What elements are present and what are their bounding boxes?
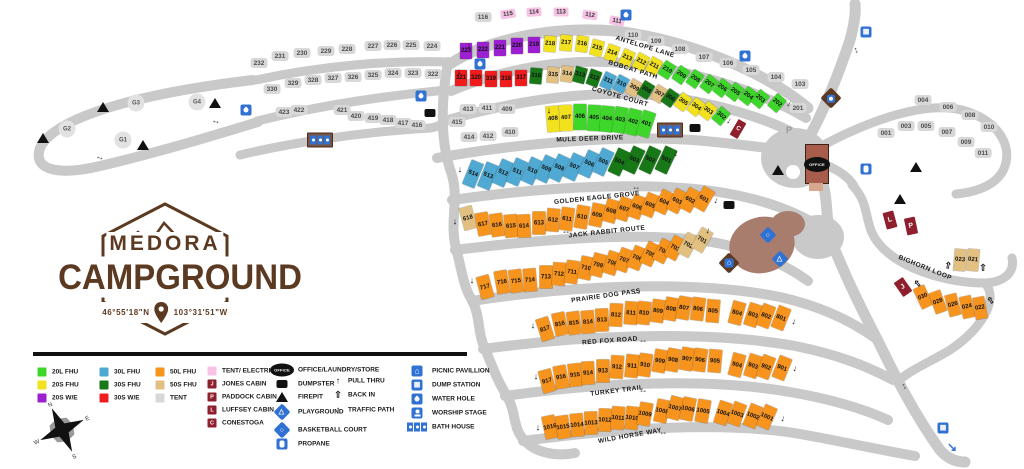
water-hole-icon — [475, 59, 486, 70]
legend-label-office-laundry-store: OFFICE/LAUNDRY/STORE — [298, 367, 379, 374]
picnic-pavillion-icon: ⌂ — [722, 256, 737, 271]
dump-station-icon: ▦ — [412, 380, 423, 391]
firepit-icon — [276, 392, 288, 402]
icon-part — [724, 201, 735, 209]
dump-station-icon: ▦ — [861, 27, 872, 38]
legend-swatch-luffsey-cabin: L — [208, 406, 217, 415]
site-003: 003 — [898, 121, 915, 131]
site-327: 327 — [325, 73, 342, 83]
icon-part — [416, 426, 419, 429]
back-in-arrow: ⇧ — [334, 391, 342, 400]
compass-n: N — [47, 402, 53, 409]
icon-part — [241, 105, 252, 116]
playground-icon: △ — [276, 406, 288, 418]
exit-arrow: ↘ — [947, 441, 957, 453]
site-1014: 1014 — [570, 413, 585, 437]
traffic-arrow: ↔ — [632, 183, 641, 192]
legend-label-propane: PROPANE — [298, 441, 330, 448]
icon-part — [910, 162, 922, 172]
icon-part — [669, 129, 672, 132]
icon-part: ↑ — [534, 373, 539, 382]
icon-part — [414, 423, 420, 432]
site-106: 106 — [720, 58, 737, 68]
icon-part — [476, 60, 483, 67]
site-116: 116 — [475, 12, 492, 22]
icon-part — [425, 109, 436, 117]
site-713: 713 — [540, 266, 553, 289]
icon-part: ▦ — [863, 29, 870, 36]
icon-part: ↑ — [531, 322, 536, 331]
site-220: 220 — [511, 38, 523, 54]
icon-part: ↔ — [639, 336, 648, 345]
icon-part — [310, 136, 316, 145]
playground-icon: △ — [774, 253, 786, 265]
icon-part — [827, 94, 835, 102]
dump-station-icon: ▦ — [938, 423, 949, 434]
icon-part: ↘ — [947, 441, 957, 453]
site-412: 412 — [480, 131, 497, 141]
site-318: 318 — [500, 71, 512, 87]
legend-swatch-50l-fhu — [156, 368, 165, 377]
propane-icon — [861, 164, 872, 175]
icon-part — [407, 423, 427, 432]
icon-part — [407, 423, 413, 432]
site-009: 009 — [958, 137, 975, 147]
site-319: 319 — [485, 71, 497, 87]
legend-swatch-conestoga: C — [208, 419, 217, 428]
icon-part: OFFICE — [270, 364, 294, 377]
worship-stage-icon — [412, 408, 423, 419]
icon-part — [414, 415, 420, 417]
site-320: 320 — [470, 70, 482, 86]
site-005: 005 — [918, 121, 935, 131]
site-114: 114 — [526, 7, 542, 17]
site-411: 411 — [479, 103, 496, 113]
site-407: 407 — [559, 105, 573, 132]
traffic-arrow: ↔ — [659, 428, 668, 437]
worship-stage-icon — [824, 91, 839, 106]
traffic-arrow: ↔ — [633, 288, 642, 297]
legend-divider — [33, 352, 467, 356]
pull-thru-arrow: ↑ — [457, 68, 462, 77]
icon-part: △ — [274, 404, 291, 421]
dumpster-icon — [425, 109, 436, 117]
icon-part — [137, 140, 149, 150]
back-in-arrow: ⇧ — [944, 261, 953, 271]
icon-part — [621, 10, 632, 21]
icon-part: ▦ — [940, 425, 947, 432]
legend-label-bath-house: BATH HOUSE — [432, 424, 475, 431]
legend-label-conestoga: CONESTOGA — [222, 420, 264, 427]
icon-part: ▦ — [414, 382, 421, 389]
firepit-icon — [37, 133, 49, 143]
site-410: 410 — [502, 127, 519, 137]
icon-part: ↑ — [470, 277, 475, 286]
firepit-icon — [137, 140, 149, 150]
legend-label-back-in: BACK IN — [348, 392, 375, 399]
traffic-arrow: ↔ — [556, 135, 565, 144]
site-914: 914 — [581, 361, 595, 385]
pull-thru-arrow: ↑ — [336, 377, 341, 386]
legend-swatch-30s-w-e — [100, 394, 109, 403]
pull-thru-arrow: ↑ — [536, 424, 541, 433]
pull-thru-arrow: ↑ — [453, 218, 458, 227]
water-hole-icon — [621, 10, 632, 21]
icon-part: ⌂ — [718, 252, 739, 273]
icon-part — [37, 133, 49, 143]
icon-part — [861, 164, 872, 175]
legend-label-traffic-path: TRAFFIC PATH — [348, 407, 394, 414]
legend-swatch-20s-w-e — [38, 394, 47, 403]
site-422: 422 — [291, 105, 308, 115]
legend-label-basketball-court: BASKETBALL COURT — [298, 427, 367, 434]
site-217: 217 — [559, 35, 572, 52]
icon-part — [660, 126, 666, 135]
icon-part — [413, 395, 420, 402]
icon-part: ▦ — [861, 27, 872, 38]
dumpster-icon — [277, 380, 288, 388]
legend-label-worship-stage: WORSHIP STAGE — [432, 410, 487, 417]
site-912: 912 — [610, 355, 625, 379]
site-328: 328 — [305, 75, 322, 85]
icon-part — [277, 380, 288, 388]
icon-part — [622, 11, 629, 18]
site-112: 112 — [582, 9, 598, 20]
icon-part — [276, 392, 288, 402]
site-227: 227 — [365, 41, 382, 51]
icon-part — [97, 102, 109, 112]
legend-swatch-30l-fhu — [100, 368, 109, 377]
icon-part — [412, 394, 423, 405]
group-site-G2: G2 — [59, 121, 76, 138]
basketball-court-icon: ○ — [276, 424, 288, 436]
site-231: 231 — [272, 51, 289, 61]
legend-label-water-hole: WATER HOLE — [432, 396, 475, 403]
site-226: 226 — [384, 40, 401, 50]
traffic-arrow: ↔ — [211, 116, 221, 126]
icon-part — [416, 91, 427, 102]
site-315: 315 — [546, 67, 559, 84]
dumpster-icon — [690, 124, 701, 132]
icon-part: ↑ — [336, 406, 340, 414]
icon-part: ↑ — [457, 68, 462, 77]
icon-part: ⌂ — [412, 366, 423, 377]
site-323: 323 — [405, 68, 422, 78]
logo-coordinates: 46°55'18"N 103°31'51"W — [100, 302, 230, 323]
logo-longitude: 103°31'51"W — [174, 308, 228, 317]
site-325: 325 — [365, 70, 382, 80]
compass-w: W — [33, 439, 41, 447]
back-in-arrow: ⇧ — [979, 264, 987, 273]
office-sign: OFFICE — [804, 157, 830, 172]
icon-part: ⌂ — [415, 367, 420, 375]
location-pin-icon — [155, 302, 169, 323]
group-site-G1: G1 — [115, 132, 132, 149]
traffic-path-arrow: ↑ — [336, 406, 340, 414]
site-219: 219 — [528, 37, 540, 53]
legend-label-jones-cabin: JONES CABIN — [222, 381, 266, 388]
legend-label-30l-fhu: 30L FHU — [114, 369, 140, 376]
icon-part: ↔ — [633, 288, 642, 297]
site-1011: 1011 — [611, 406, 626, 430]
legend-swatch-paddock-cabin: P — [208, 393, 217, 402]
legend-label-50l-fhu: 50L FHU — [170, 369, 196, 376]
site-813: 813 — [595, 308, 609, 331]
bath-house-icon — [407, 423, 427, 432]
site-225: 225 — [403, 40, 420, 50]
traffic-arrow: ↔ — [562, 227, 571, 236]
pull-thru-arrow: ↑ — [458, 166, 463, 175]
legend-label-picnic-pavillion: PICNIC PAVILLION — [432, 368, 490, 375]
icon-part: OFFICE — [274, 368, 290, 373]
bath-house-icon — [307, 133, 333, 148]
group-site-G3: G3 — [128, 95, 145, 112]
icon-part — [772, 165, 784, 175]
pull-thru-arrow: ↑ — [534, 373, 539, 382]
legend-label-dump-station: DUMP STATION — [432, 382, 480, 389]
pull-thru-arrow: ↑ — [531, 322, 536, 331]
legend-swatch-tent — [156, 394, 165, 403]
icon-part: △ — [777, 255, 782, 262]
compass-e: E — [85, 416, 91, 423]
legend-label-20s-w-e: 20S W/E — [52, 395, 78, 402]
icon-part — [676, 129, 679, 132]
site-008: 008 — [962, 110, 979, 120]
icon-part — [475, 59, 486, 70]
bath-house-icon — [657, 123, 683, 138]
icon-part: △ — [772, 251, 789, 268]
legend-label-30s-w-e: 30S W/E — [114, 395, 140, 402]
icon-part — [829, 96, 833, 100]
site-614: 614 — [517, 214, 531, 238]
site-230: 230 — [294, 48, 311, 58]
site-222: 222 — [477, 42, 489, 58]
site-810: 810 — [636, 301, 651, 325]
site-224: 224 — [424, 41, 441, 51]
icon-part: ↔ — [562, 227, 571, 236]
site-324: 324 — [385, 68, 402, 78]
site-814: 814 — [581, 310, 596, 334]
icon-part: △ — [279, 408, 284, 415]
firepit-icon — [772, 165, 784, 175]
parking-label: P — [786, 125, 792, 135]
campground-logo: MEDORA CAMPGROUND 46°55'18"N 103°31'51"W — [60, 198, 340, 338]
site-103: 103 — [792, 79, 809, 89]
icon-part — [326, 139, 329, 142]
compass-s: S — [72, 454, 78, 461]
site-010: 010 — [981, 122, 998, 132]
icon-part — [412, 408, 423, 419]
icon-part — [820, 87, 841, 108]
icon-part — [277, 439, 288, 450]
pull-thru-arrow: ↑ — [470, 277, 475, 286]
site-011: 011 — [975, 148, 992, 158]
site-228: 228 — [339, 44, 356, 54]
site-805: 805 — [706, 299, 721, 323]
icon-part — [319, 139, 322, 142]
site-409: 409 — [499, 104, 516, 114]
firepit-icon — [910, 162, 922, 172]
water-hole-icon — [416, 91, 427, 102]
icon-part: ↔ — [639, 386, 648, 395]
legend-label-luffsey-cabin: LUFFSEY CABIN — [222, 407, 274, 414]
site-104: 104 — [768, 72, 785, 82]
legend-label-20s-fhu: 20S FHU — [52, 382, 79, 389]
icon-part — [662, 129, 665, 132]
icon-part — [242, 106, 249, 113]
traffic-arrow: ↔ — [639, 336, 648, 345]
water-hole-icon — [412, 394, 423, 405]
icon-part — [312, 139, 315, 142]
legend-label-30s-fhu: 30S FHU — [114, 382, 141, 389]
office-steps — [809, 183, 823, 191]
icon-part: ○ — [280, 426, 284, 433]
traffic-arrow: ↔ — [639, 386, 648, 395]
site-001: 001 — [878, 128, 895, 138]
site-023: 023 — [953, 249, 967, 272]
icon-part — [741, 52, 748, 59]
icon-part: ↑ — [536, 424, 541, 433]
icon-part: ↑ — [458, 166, 463, 175]
office-sign-label: OFFICE — [809, 162, 825, 167]
logo-subtitle: CAMPGROUND — [55, 256, 305, 297]
site-714: 714 — [523, 268, 538, 292]
icon-part: ↑ — [547, 107, 552, 116]
icon-part: ⌂ — [727, 260, 731, 267]
site-113: 113 — [554, 8, 569, 17]
legend-swatch-30s-fhu — [100, 381, 109, 390]
icon-part: ⌂ — [725, 259, 734, 268]
office-building: OFFICE — [805, 144, 829, 184]
legend-label-paddock-cabin: PADDOCK CABIN — [222, 394, 277, 401]
logo-title: MEDORA — [106, 232, 223, 256]
picnic-pavillion-icon: ⌂ — [412, 366, 423, 377]
site-201: 201 — [790, 103, 807, 113]
site-232: 232 — [251, 58, 268, 68]
icon-part: ▦ — [938, 423, 949, 434]
icon-part — [674, 126, 680, 135]
campground-map: N E S W OFFICE P MEDORA CAMPGROUND 46°55… — [0, 0, 1024, 469]
legend-label-50s-fhu: 50S FHU — [170, 382, 197, 389]
site-420: 420 — [348, 111, 365, 121]
legend-label-tent: TENT — [170, 395, 187, 402]
site-414: 414 — [461, 132, 478, 142]
icon-part: ○ — [766, 231, 770, 238]
site-107: 107 — [696, 52, 713, 62]
group-site-G4: G4 — [189, 94, 206, 111]
legend-swatch-20s-fhu — [38, 381, 47, 390]
icon-part — [421, 423, 427, 432]
water-hole-icon — [740, 51, 751, 62]
site-913: 913 — [597, 360, 610, 383]
icon-part: ↑ — [453, 218, 458, 227]
site-415: 415 — [449, 117, 466, 127]
site-317: 317 — [515, 70, 527, 86]
icon-part — [324, 136, 330, 145]
legend-label-tent-electric: TENT/ ELECTRIC — [222, 368, 275, 375]
office-icon: OFFICE — [270, 364, 294, 377]
legend-label-20l-fhu: 20L FHU — [52, 369, 78, 376]
site-218: 218 — [543, 36, 556, 53]
firepit-icon — [209, 98, 221, 108]
site-007: 007 — [939, 127, 956, 137]
icon-part: ▦ — [412, 380, 423, 391]
icon-part — [423, 426, 426, 429]
dumpster-icon — [724, 201, 735, 209]
icon-part: ⇧ — [944, 261, 953, 271]
icon-part: ↔ — [659, 428, 668, 437]
legend-swatch-tent-electric — [208, 367, 217, 376]
site-021: 021 — [966, 249, 980, 272]
icon-part — [307, 133, 333, 148]
icon-part: ○ — [274, 422, 291, 439]
site-413: 413 — [460, 104, 477, 114]
site-1013: 1013 — [584, 411, 598, 434]
basketball-court-icon: ○ — [762, 229, 774, 241]
icon-part — [317, 136, 323, 145]
icon-part: ⇧ — [979, 264, 987, 273]
site-006: 006 — [940, 102, 957, 112]
legend-swatch-20l-fhu — [38, 368, 47, 377]
pull-thru-arrow: ↑ — [547, 107, 552, 116]
icon-part — [690, 124, 701, 132]
site-905: 905 — [708, 349, 723, 373]
site-416: 416 — [409, 120, 426, 130]
site-229: 229 — [318, 46, 335, 56]
icon-part: ↔ — [556, 135, 565, 144]
icon-part: ○ — [760, 227, 777, 244]
icon-part — [415, 410, 419, 414]
compass-rose: N E S W — [21, 390, 103, 469]
icon-part — [409, 426, 412, 429]
site-004: 004 — [915, 95, 932, 105]
icon-part — [657, 123, 683, 138]
legend-label-pull-thru: PULL THRU — [348, 378, 385, 385]
icon-part — [417, 92, 424, 99]
site-613: 613 — [533, 212, 546, 235]
site-105: 105 — [743, 65, 760, 75]
legend-label-firepit: FIREPIT — [298, 394, 323, 401]
icon-part: ↔ — [632, 183, 641, 192]
site-406: 406 — [574, 104, 587, 130]
icon-part: ↑ — [467, 42, 472, 51]
firepit-icon — [894, 194, 906, 204]
icon-part: ↑ — [336, 377, 341, 386]
site-812: 812 — [609, 303, 623, 327]
icon-part: ↔ — [211, 116, 221, 126]
pull-thru-arrow: ↑ — [467, 42, 472, 51]
icon-part — [667, 126, 673, 135]
icon-part: ⇧ — [334, 391, 342, 400]
legend-swatch-jones-cabin: J — [208, 380, 217, 389]
propane-icon — [277, 439, 288, 450]
site-330: 330 — [264, 84, 281, 94]
site-322: 322 — [425, 69, 442, 79]
site-316: 316 — [529, 68, 542, 85]
water-hole-icon — [241, 105, 252, 116]
firepit-icon — [97, 102, 109, 112]
logo-latitude: 46°55'18"N — [102, 308, 149, 317]
icon-part — [280, 441, 285, 448]
site-216: 216 — [575, 35, 589, 53]
icon-part — [894, 194, 906, 204]
legend-swatch-50s-fhu — [156, 381, 165, 390]
icon-part — [864, 166, 869, 173]
legend-label-dumpster: DUMPSTER — [298, 381, 334, 388]
icon-part — [740, 51, 751, 62]
site-329: 329 — [285, 78, 302, 88]
site-326: 326 — [345, 72, 362, 82]
